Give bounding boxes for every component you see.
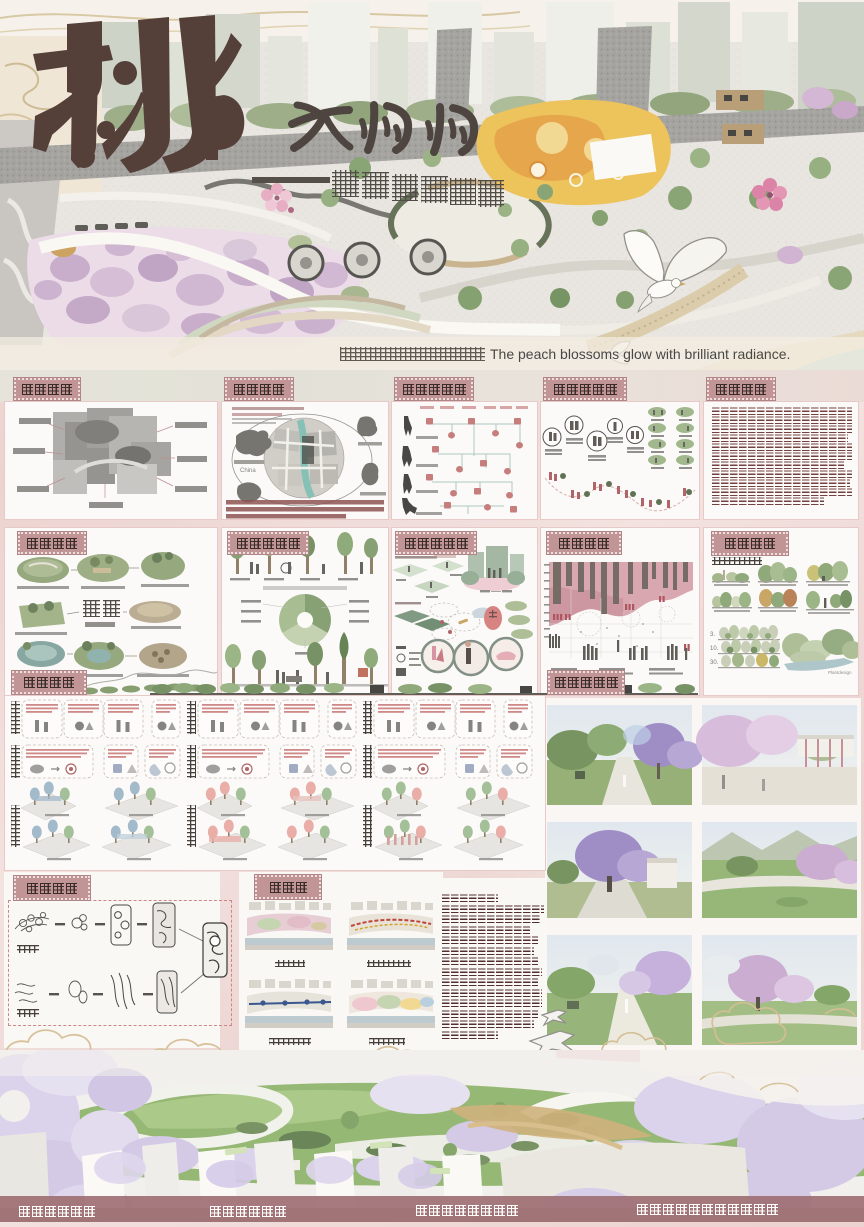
- svg-text:30.: 30.: [710, 660, 719, 666]
- svg-text:The peach blossoms glow with b: The peach blossoms glow with brilliant r…: [490, 346, 790, 362]
- svg-text:Plantdesign: Plantdesign: [828, 670, 852, 675]
- svg-text:3.: 3.: [710, 632, 715, 638]
- svg-text:China: China: [240, 468, 256, 474]
- svg-text:10.: 10.: [710, 646, 719, 652]
